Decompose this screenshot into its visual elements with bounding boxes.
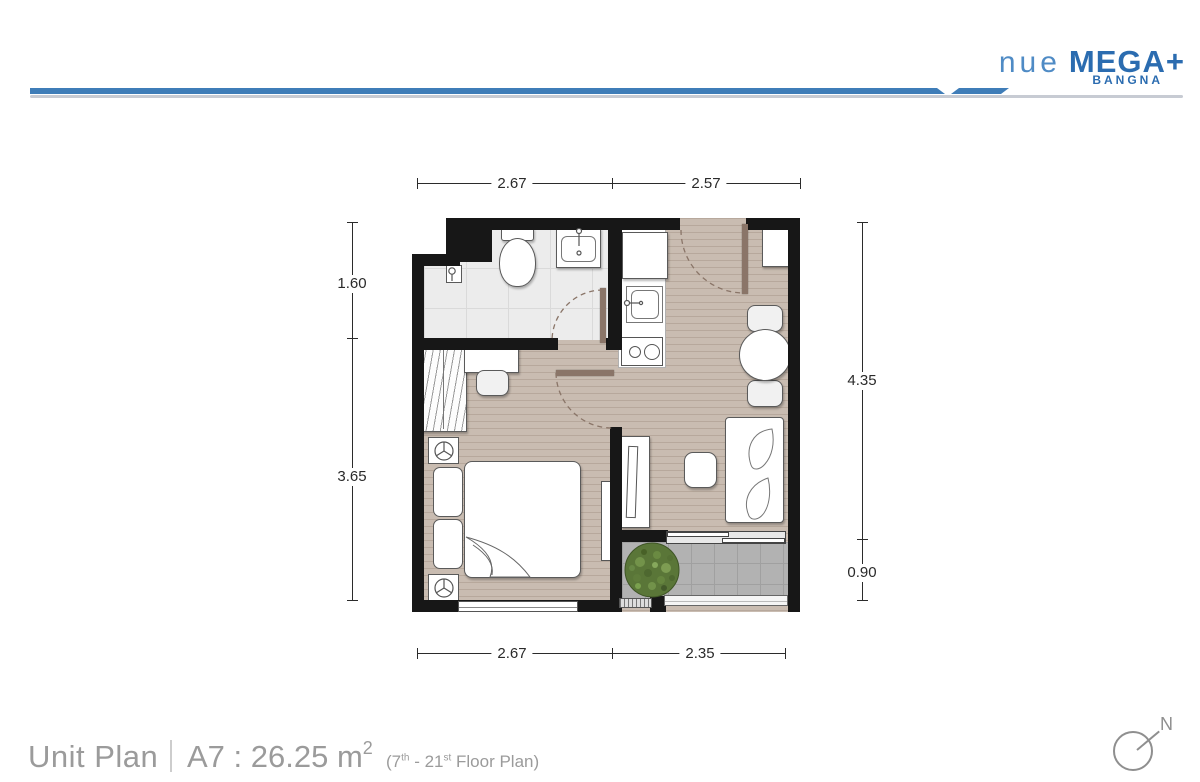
bathroom-door-arc [552, 290, 603, 341]
unit-label: A7 : 26.25 m2 [187, 739, 373, 775]
dim-right-1: 4.35 [841, 372, 882, 390]
compass-icon [1113, 731, 1153, 771]
dim-top-2: 2.57 [685, 175, 726, 193]
balcony-plant [625, 543, 679, 597]
dim-bottom-2: 2.35 [679, 645, 720, 663]
page-title: Unit Plan [28, 739, 158, 775]
dim-bottom-1: 2.67 [491, 645, 532, 663]
nightstand-lamp-bottom [435, 579, 453, 597]
compass-north-label: N [1160, 714, 1173, 735]
title-divider [170, 740, 172, 772]
floor-range-note: (7th - 21st Floor Plan) [386, 752, 539, 772]
sofa-cushions [746, 429, 773, 519]
plan-details-overlay [0, 0, 1200, 782]
bedroom-door-arc [556, 373, 612, 428]
page: nueMEGA+ BANGNA [0, 0, 1200, 782]
nightstand-lamp-top [435, 442, 453, 460]
dim-top-1: 2.67 [491, 175, 532, 193]
dim-left-1: 1.60 [331, 275, 372, 293]
dim-left-2: 3.65 [331, 468, 372, 486]
door-swing-arcs [552, 230, 744, 428]
bed-blanket-fold [466, 537, 530, 577]
unit-area-sup: 2 [363, 738, 373, 758]
dim-right-2: 0.90 [841, 564, 882, 582]
faucet-marks [449, 229, 643, 306]
entry-door-arc [681, 230, 744, 293]
